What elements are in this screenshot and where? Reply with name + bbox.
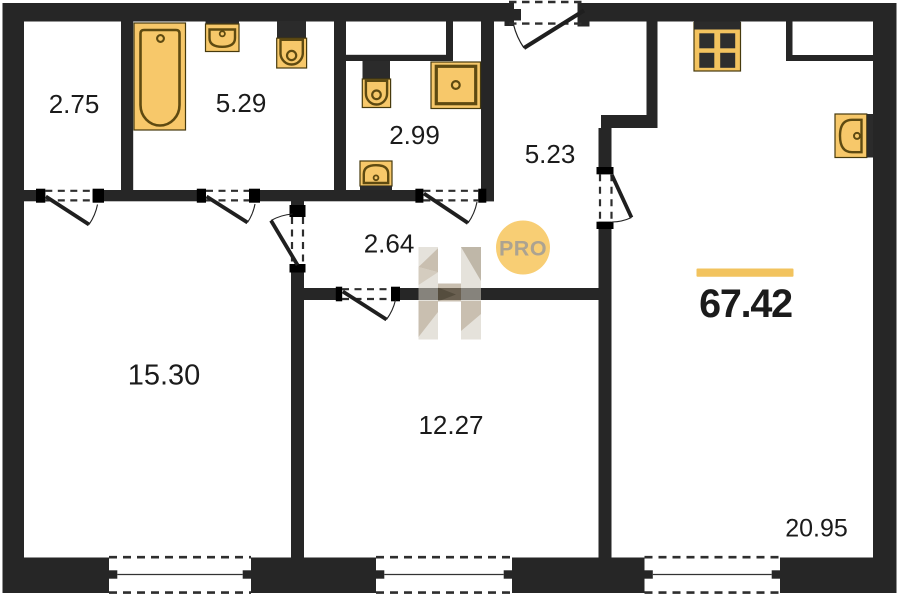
svg-text:15.30: 15.30 xyxy=(128,360,201,392)
svg-text:12.27: 12.27 xyxy=(418,410,483,440)
svg-text:2.99: 2.99 xyxy=(389,120,440,150)
svg-text:20.95: 20.95 xyxy=(785,515,848,543)
svg-text:2.64: 2.64 xyxy=(364,229,415,259)
svg-text:5.29: 5.29 xyxy=(216,88,267,118)
svg-text:67.42: 67.42 xyxy=(699,282,792,326)
svg-text:2.75: 2.75 xyxy=(49,89,100,119)
svg-text:PRO: PRO xyxy=(499,236,547,260)
svg-text:5.23: 5.23 xyxy=(525,139,576,169)
